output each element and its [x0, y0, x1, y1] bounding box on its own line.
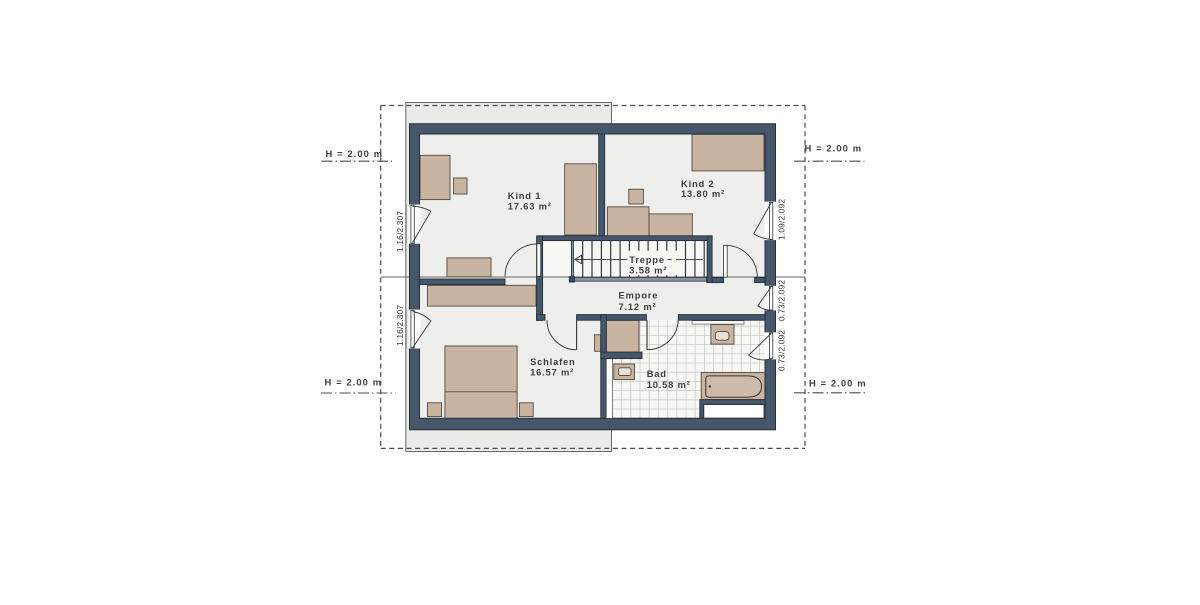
svg-text:3.58 m²: 3.58 m² [629, 265, 667, 276]
svg-text:H = 2.00 m: H = 2.00 m [326, 148, 384, 159]
svg-text:0.73/2.092: 0.73/2.092 [777, 280, 787, 321]
svg-text:1.09/2.092: 1.09/2.092 [777, 199, 787, 240]
svg-text:17.63 m²: 17.63 m² [508, 201, 552, 212]
svg-text:Treppe: Treppe [629, 254, 665, 265]
svg-text:1.16/2.307: 1.16/2.307 [395, 305, 405, 346]
svg-text:Schlafen: Schlafen [530, 356, 575, 367]
svg-text:H = 2.00 m: H = 2.00 m [805, 143, 863, 154]
svg-text:16.57 m²: 16.57 m² [530, 367, 574, 378]
svg-text:7.12 m²: 7.12 m² [619, 301, 657, 312]
svg-text:H = 2.00 m: H = 2.00 m [325, 377, 383, 388]
svg-text:Bad: Bad [647, 368, 667, 379]
svg-text:H = 2.00 m: H = 2.00 m [809, 378, 867, 389]
svg-text:Kind 2: Kind 2 [681, 178, 714, 189]
svg-text:Empore: Empore [619, 290, 659, 301]
svg-text:13.80 m²: 13.80 m² [681, 188, 725, 199]
svg-text:10.58 m²: 10.58 m² [647, 379, 691, 390]
svg-text:Kind 1: Kind 1 [508, 190, 541, 201]
svg-text:0.73/2.092: 0.73/2.092 [777, 330, 787, 371]
svg-text:1.16/2.307: 1.16/2.307 [395, 211, 405, 252]
